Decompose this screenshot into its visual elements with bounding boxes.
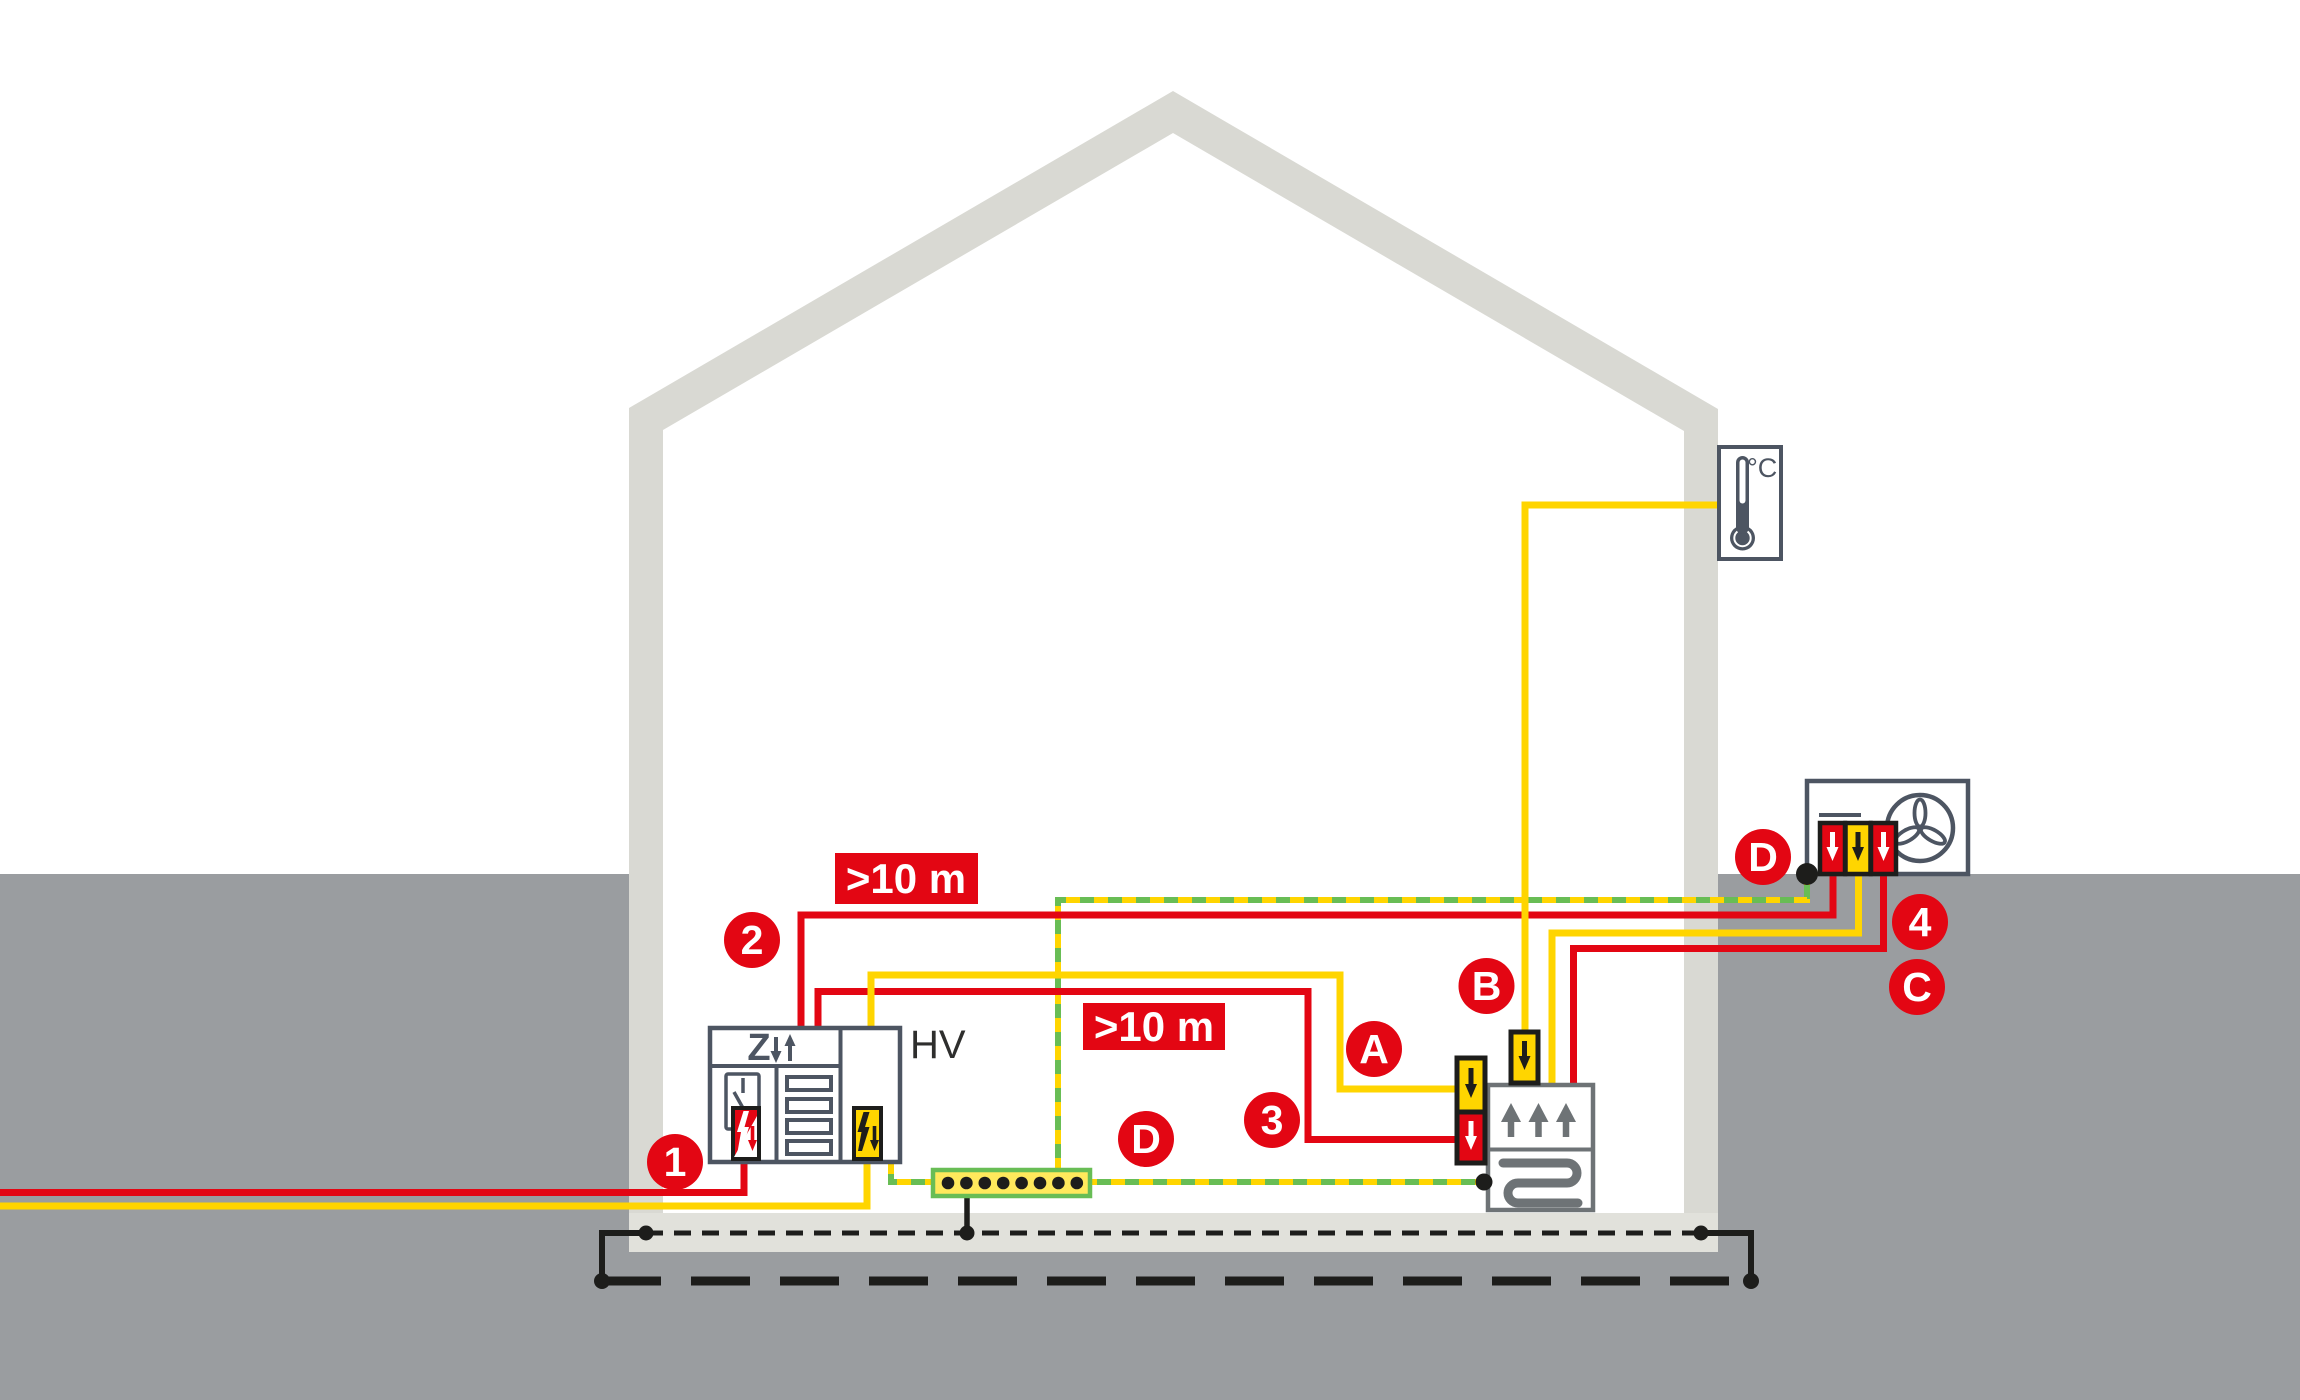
svg-text:2: 2 (741, 917, 764, 963)
svg-text:>10 m: >10 m (1094, 1003, 1214, 1050)
svg-text:°C: °C (1747, 453, 1777, 483)
svg-text:C: C (1902, 964, 1932, 1010)
svg-text:D: D (1131, 1116, 1161, 1162)
svg-text:>10 m: >10 m (846, 855, 966, 902)
svg-text:A: A (1359, 1026, 1389, 1072)
svg-text:3: 3 (1261, 1097, 1284, 1143)
svg-text:4: 4 (1909, 899, 1932, 945)
svg-text:D: D (1748, 834, 1778, 880)
svg-text:1: 1 (664, 1139, 687, 1185)
svg-text:HV: HV (910, 1023, 966, 1067)
svg-text:Z: Z (747, 1027, 770, 1069)
svg-text:B: B (1472, 963, 1502, 1009)
